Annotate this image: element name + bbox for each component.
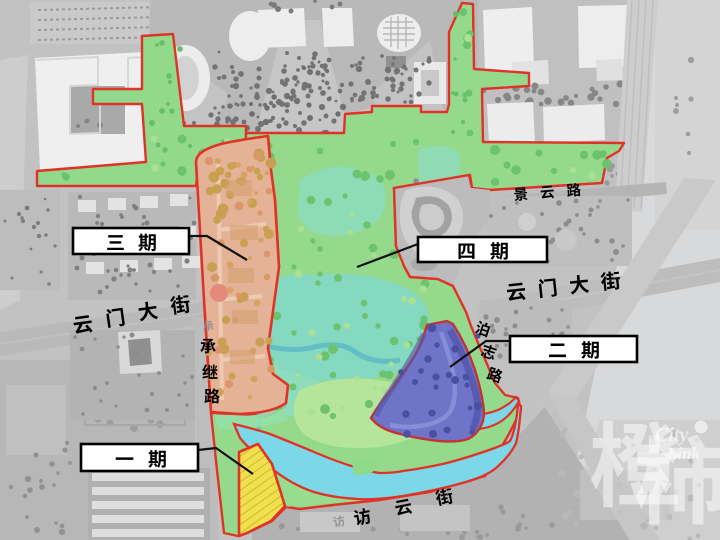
svg-text:City: City (655, 424, 688, 446)
svg-text:Link: Link (666, 444, 701, 463)
